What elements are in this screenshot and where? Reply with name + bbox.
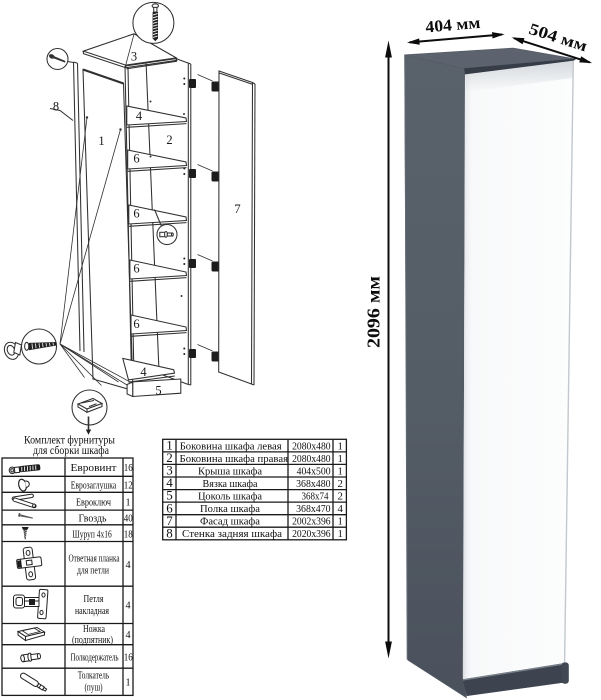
svg-text:Крыша шкафа: Крыша шкафа: [198, 465, 262, 477]
svg-text:6: 6: [133, 317, 139, 331]
svg-text:1: 1: [337, 440, 342, 452]
svg-text:6: 6: [133, 207, 139, 221]
svg-text:накладная: накладная: [75, 606, 109, 617]
svg-text:для сборки шкафа: для сборки шкафа: [33, 443, 110, 457]
svg-text:368х470: 368х470: [296, 503, 331, 515]
svg-text:Толкатель: Толкатель: [78, 671, 110, 682]
svg-text:2002х396: 2002х396: [292, 516, 331, 528]
svg-text:Фасад шкафа: Фасад шкафа: [200, 516, 260, 528]
svg-text:Стенка задняя шкафа: Стенка задняя шкафа: [182, 528, 282, 540]
svg-text:1: 1: [337, 465, 342, 477]
svg-text:1: 1: [125, 498, 130, 509]
svg-text:4: 4: [125, 560, 130, 571]
svg-text:16: 16: [124, 653, 133, 664]
svg-text:368х74: 368х74: [302, 491, 330, 503]
svg-text:4: 4: [140, 365, 147, 379]
svg-text:3: 3: [131, 50, 137, 64]
svg-text:Ножка: Ножка: [83, 624, 105, 635]
svg-text:8: 8: [166, 525, 173, 540]
svg-text:Полка шкафа: Полка шкафа: [200, 503, 260, 515]
svg-text:1: 1: [98, 134, 104, 148]
svg-text:2: 2: [166, 133, 172, 147]
svg-text:2: 2: [337, 478, 342, 490]
svg-text:404х500: 404х500: [297, 465, 331, 477]
svg-text:1: 1: [337, 528, 342, 540]
svg-text:2: 2: [337, 491, 342, 503]
svg-text:Евровинт: Евровинт: [71, 463, 118, 474]
svg-text:1: 1: [337, 453, 342, 465]
svg-text:Цоколь шкафа: Цоколь шкафа: [198, 491, 262, 503]
svg-text:7: 7: [234, 202, 240, 216]
svg-text:Полкодержатель: Полкодержатель: [71, 653, 119, 664]
svg-text:Гвоздь: Гвоздь: [79, 514, 107, 525]
svg-text:5: 5: [155, 384, 161, 398]
svg-text:2096 мм: 2096 мм: [364, 276, 384, 348]
svg-text:Петля: Петля: [84, 594, 104, 605]
svg-text:Евроключ: Евроключ: [76, 498, 111, 509]
svg-text:2020х396: 2020х396: [292, 528, 331, 540]
svg-text:18: 18: [124, 530, 133, 541]
svg-text:Шуруп 4х16: Шуруп 4х16: [72, 530, 112, 541]
svg-text:12: 12: [124, 481, 133, 492]
svg-text:40: 40: [124, 514, 133, 525]
svg-text:4: 4: [125, 601, 130, 612]
svg-text:(пуш): (пуш): [85, 683, 103, 694]
svg-text:Боковина шкафа правая: Боковина шкафа правая: [180, 453, 289, 465]
svg-text:1: 1: [337, 516, 342, 528]
svg-text:8: 8: [53, 100, 59, 114]
svg-text:368х480: 368х480: [296, 478, 331, 490]
svg-text:Вязка шкафа: Вязка шкафа: [203, 478, 258, 490]
svg-text:Боковина шкафа левая: Боковина шкафа левая: [180, 440, 282, 452]
svg-text:Еврозаглушка: Еврозаглушка: [71, 481, 117, 492]
svg-text:6: 6: [133, 262, 139, 276]
svg-text:16: 16: [124, 463, 133, 474]
svg-text:4: 4: [125, 630, 130, 641]
svg-text:4: 4: [337, 503, 343, 515]
svg-text:504 мм: 504 мм: [527, 19, 590, 55]
svg-text:Ответная планка: Ответная планка: [69, 554, 120, 565]
svg-text:2080х480: 2080х480: [292, 440, 331, 452]
svg-text:для петли: для петли: [77, 566, 109, 577]
svg-text:4: 4: [136, 109, 143, 123]
svg-text:(подпятник): (подпятник): [72, 635, 113, 646]
svg-text:2080х480: 2080х480: [292, 453, 331, 465]
svg-text:404 мм: 404 мм: [425, 13, 481, 37]
svg-text:6: 6: [133, 152, 139, 166]
svg-text:1: 1: [125, 678, 130, 689]
